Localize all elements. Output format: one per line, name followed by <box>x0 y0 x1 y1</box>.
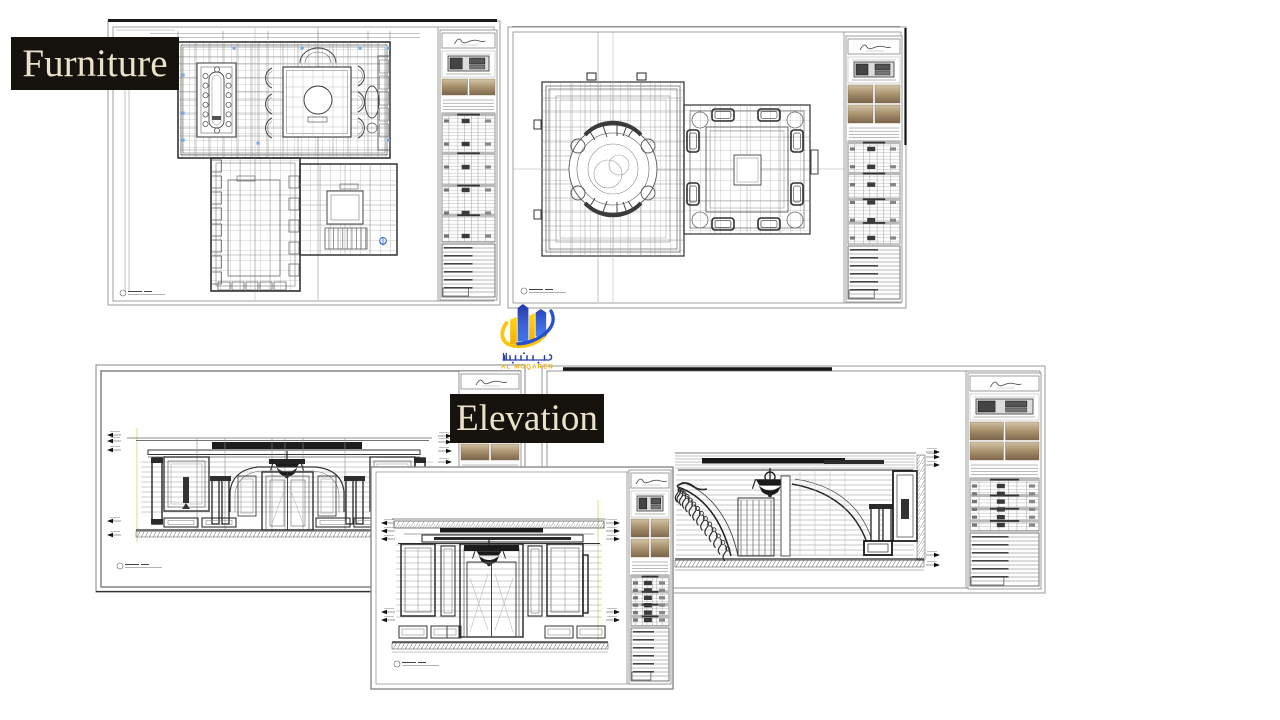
svg-text:Furniture: Furniture <box>22 42 167 85</box>
svg-text:AL MOQAREN: AL MOQAREN <box>501 365 554 371</box>
svg-text:Elevation: Elevation <box>456 398 598 439</box>
